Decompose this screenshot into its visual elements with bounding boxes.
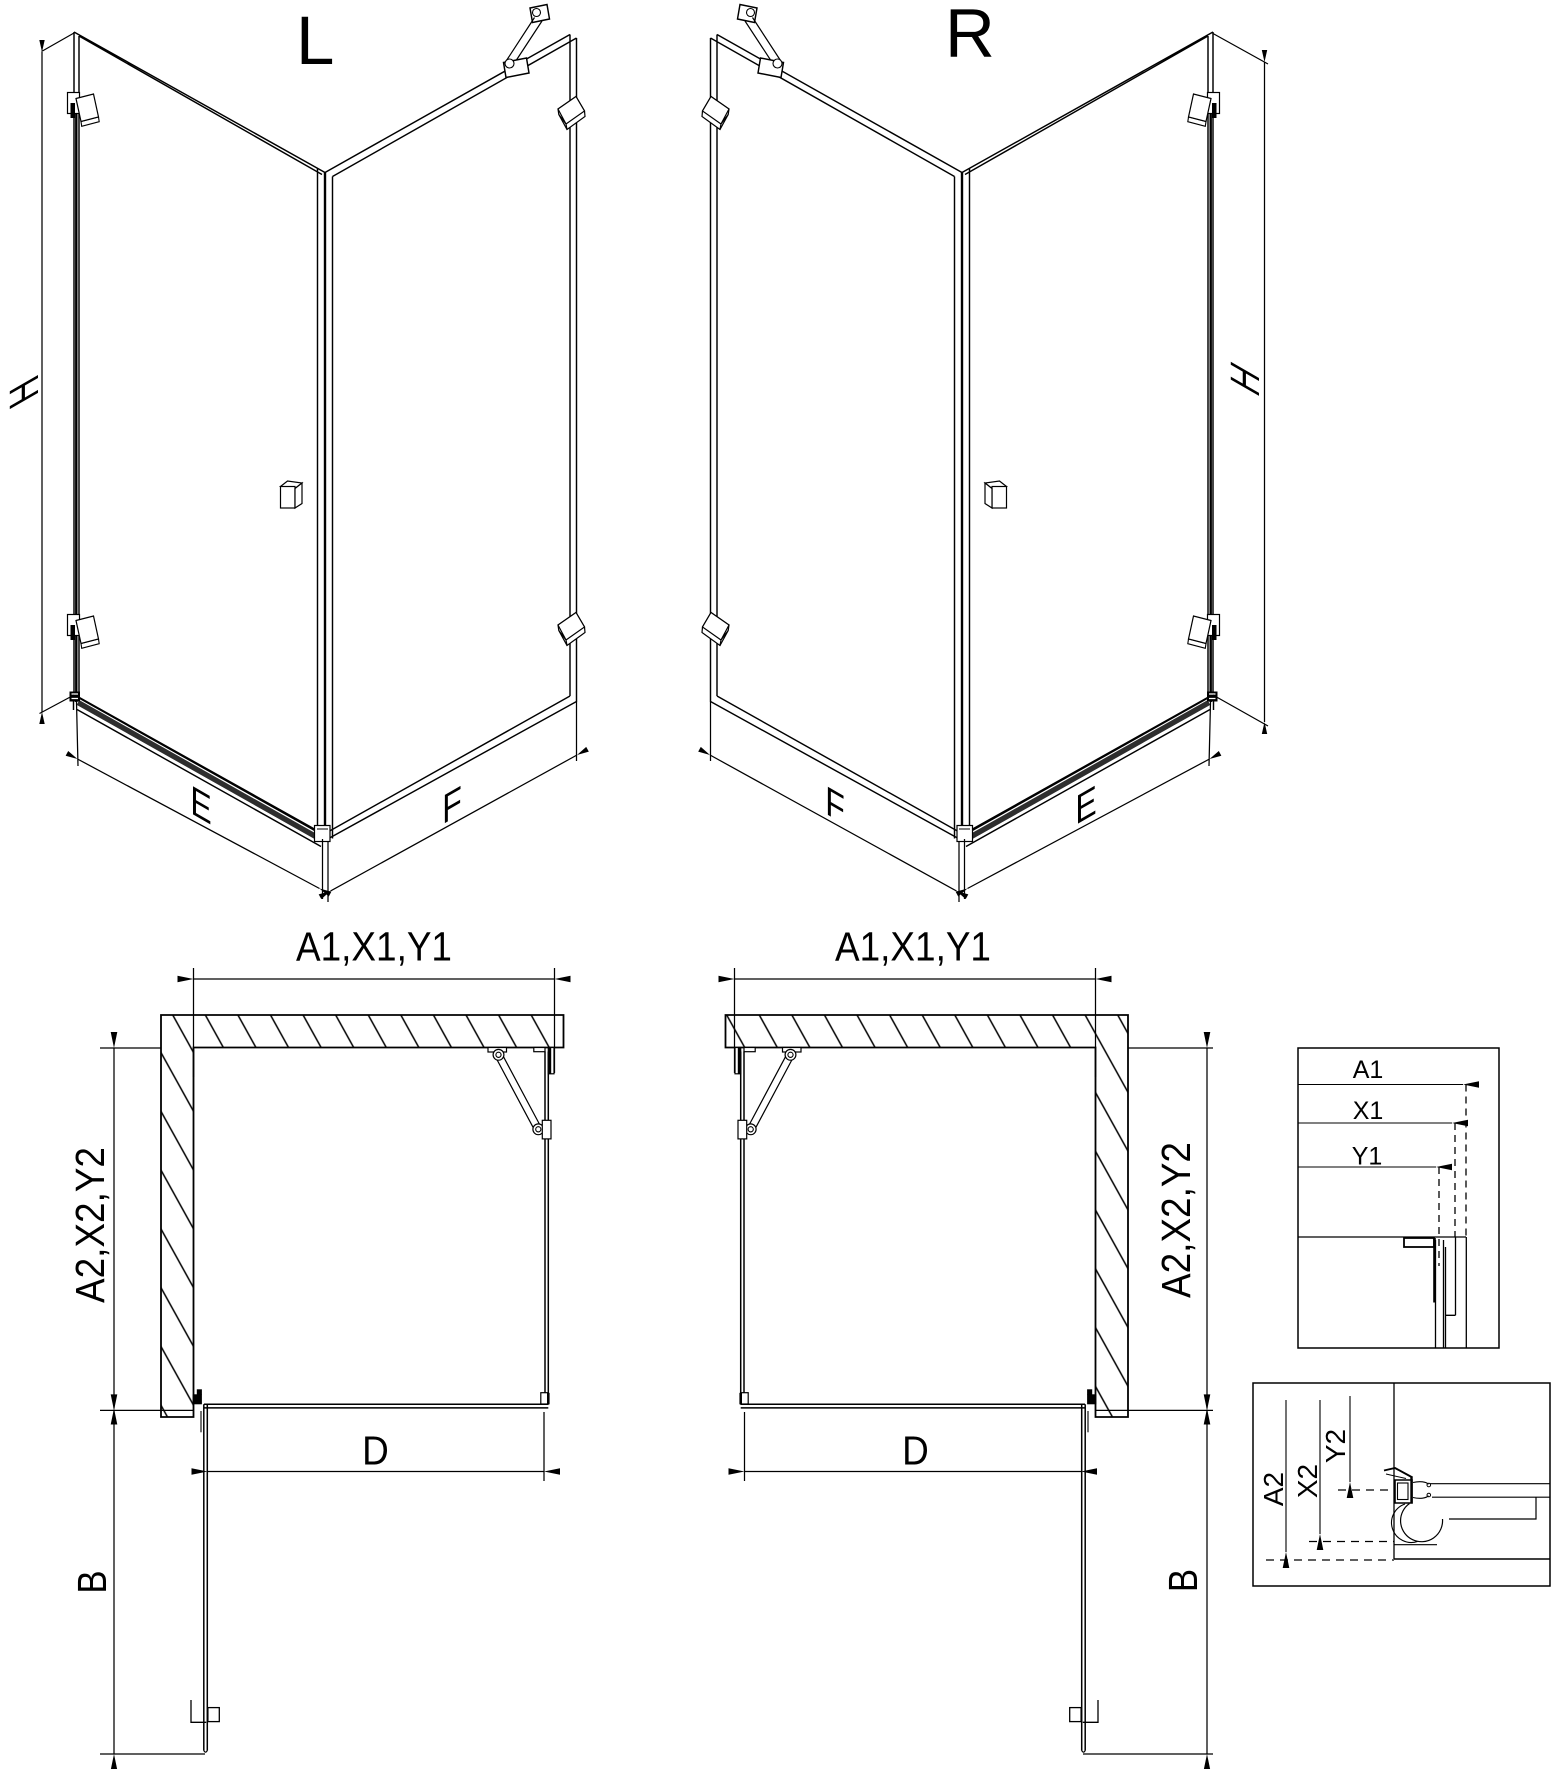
svg-text:A2: A2 [1258, 1472, 1289, 1506]
svg-text:B: B [70, 1570, 115, 1593]
svg-text:D: D [362, 1429, 389, 1474]
svg-text:B: B [1161, 1569, 1206, 1592]
svg-text:A1: A1 [1353, 1056, 1384, 1084]
svg-text:L: L [296, 2, 334, 79]
svg-text:A2,X2,Y2: A2,X2,Y2 [1154, 1142, 1199, 1298]
svg-text:A1,X1,Y1: A1,X1,Y1 [835, 925, 991, 970]
svg-text:A2,X2,Y2: A2,X2,Y2 [68, 1147, 113, 1303]
svg-text:A1,X1,Y1: A1,X1,Y1 [296, 925, 452, 970]
svg-text:Y1: Y1 [1352, 1143, 1383, 1171]
svg-text:Y2: Y2 [1320, 1429, 1351, 1463]
svg-text:X1: X1 [1353, 1097, 1384, 1125]
svg-text:X2: X2 [1292, 1464, 1323, 1498]
svg-text:R: R [945, 0, 995, 72]
svg-text:D: D [902, 1429, 929, 1474]
